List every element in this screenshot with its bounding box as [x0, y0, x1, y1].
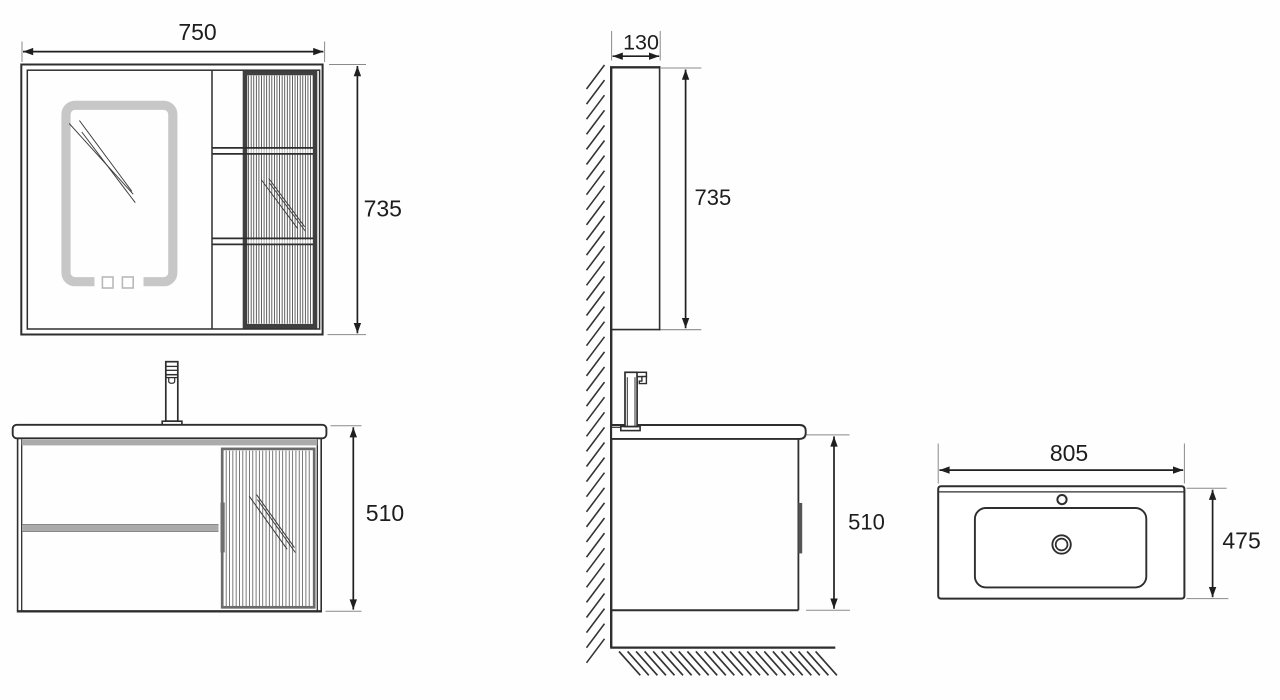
- svg-text:735: 735: [695, 185, 732, 210]
- svg-text:475: 475: [1222, 528, 1260, 554]
- svg-text:510: 510: [366, 500, 404, 526]
- svg-text:805: 805: [1050, 440, 1088, 466]
- svg-text:510: 510: [848, 509, 885, 534]
- svg-text:735: 735: [364, 196, 402, 222]
- svg-text:750: 750: [178, 19, 216, 45]
- svg-text:130: 130: [623, 30, 659, 54]
